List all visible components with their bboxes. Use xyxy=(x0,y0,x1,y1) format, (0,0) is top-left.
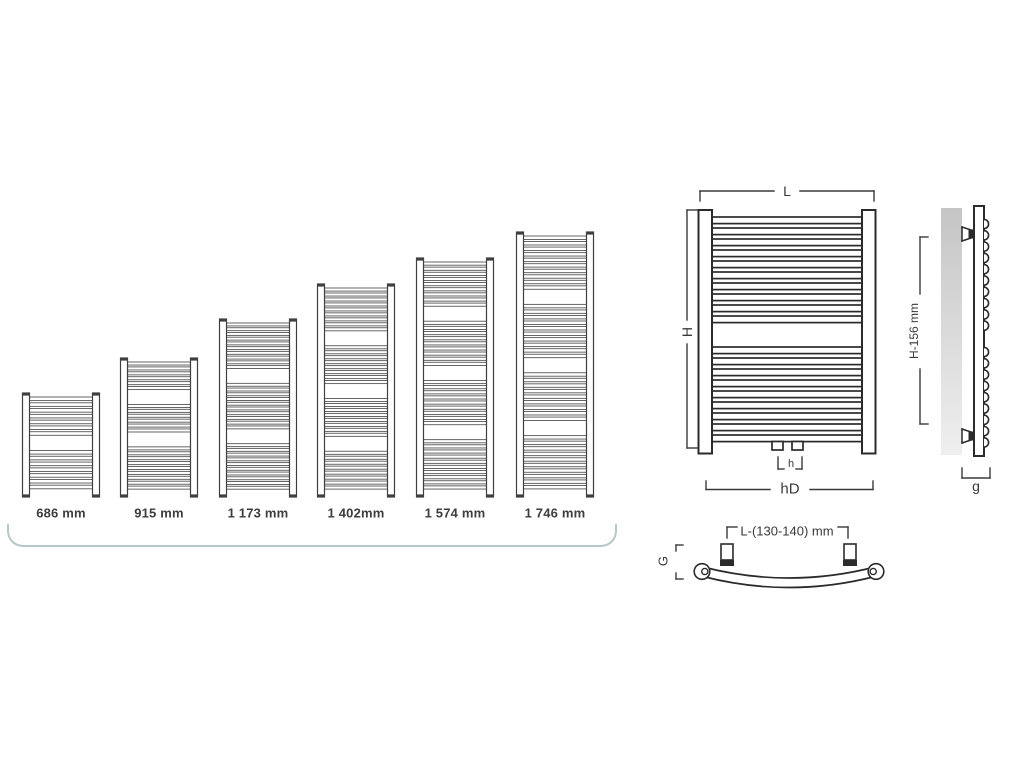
size-label: 915 mm xyxy=(134,506,184,521)
size-label: 686 mm xyxy=(36,506,86,521)
dim-label-depth-g: g xyxy=(972,478,980,494)
radiator-size-lineup xyxy=(23,232,594,497)
radiator-915-drawing xyxy=(121,358,198,497)
radiator-1746-drawing xyxy=(517,232,594,497)
radiator-1574-drawing xyxy=(417,258,494,497)
size-label: 1 746 mm xyxy=(525,506,586,521)
size-label: 1 402mm xyxy=(327,506,384,521)
front-view-drawing xyxy=(687,191,876,490)
dim-label-valve-spacing-h: h xyxy=(788,458,794,470)
diagram-line-art xyxy=(0,0,1024,768)
dim-label-connection-hD: hD xyxy=(780,481,799,498)
radiator-686-drawing xyxy=(23,393,100,497)
radiator-1402-drawing xyxy=(318,284,395,497)
radiator-dimension-diagram: 686 mm915 mm1 173 mm1 402mm1 574 mm1 746… xyxy=(0,0,1024,768)
radiator-1173-drawing xyxy=(220,319,297,497)
dim-label-height-H: H xyxy=(679,327,695,337)
dim-label-width-L: L xyxy=(783,183,791,199)
dim-label-bracket-spacing: L-(130-140) mm xyxy=(740,524,833,539)
size-label: 1 173 mm xyxy=(228,506,289,521)
size-label: 1 574 mm xyxy=(425,506,486,521)
side-view-drawing xyxy=(920,206,990,478)
dim-label-bracket-height: H-156 mm xyxy=(907,303,921,359)
baseline-swoosh xyxy=(7,524,617,547)
dim-label-depth-G: G xyxy=(656,556,671,566)
